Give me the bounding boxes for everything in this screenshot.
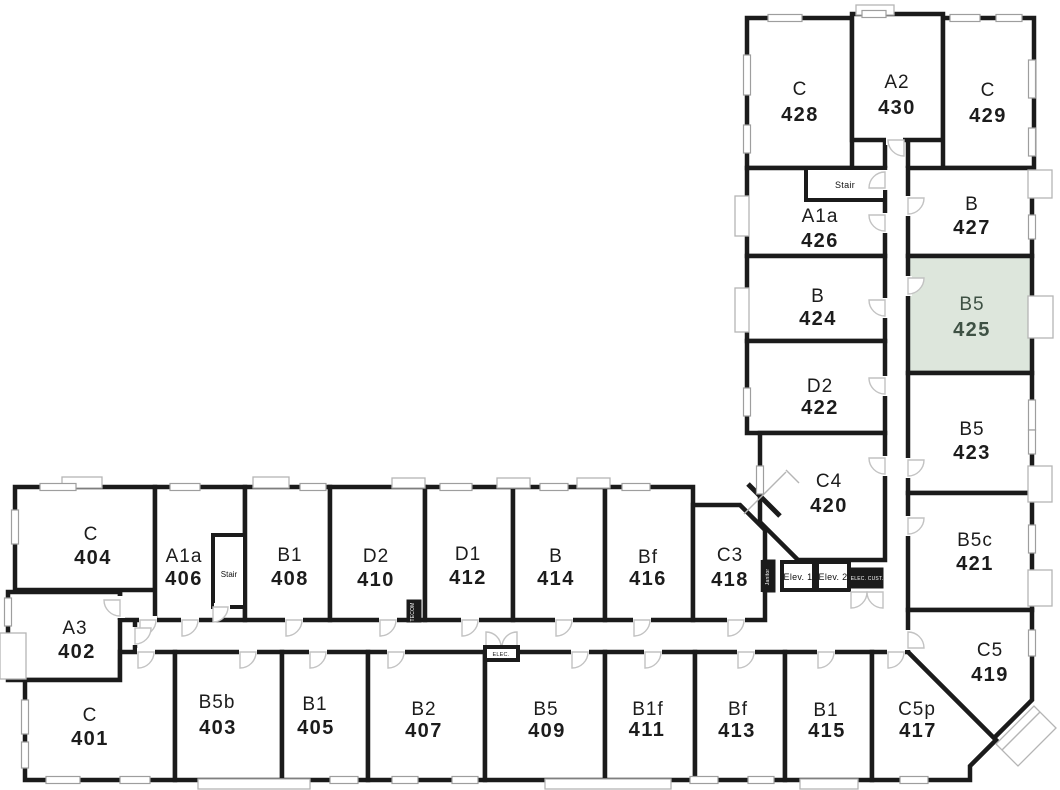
door-arc <box>462 620 478 636</box>
unit-type: B1 <box>813 700 838 721</box>
unit-number: 407 <box>405 720 443 742</box>
stair-bottom-label: Stair <box>221 570 238 579</box>
unit-number: 426 <box>801 230 839 252</box>
unit-type: A1a <box>166 546 203 567</box>
unit-shapes <box>8 14 1034 780</box>
unit-405[interactable] <box>282 652 368 780</box>
unit-number: 418 <box>711 569 749 591</box>
unit-type: C4 <box>816 471 842 492</box>
unit-number: 415 <box>808 720 846 742</box>
janitor-label: Janitor <box>765 569 771 586</box>
unit-number: 406 <box>165 568 203 590</box>
double-door-arc <box>486 632 501 647</box>
floor-plan-page: C 428 A2 430 C 429 A1a 426 B 427 B 424 B… <box>0 0 1060 790</box>
unit-number: 411 <box>629 719 666 741</box>
unit-number: 409 <box>528 720 566 742</box>
door-arc <box>888 140 904 156</box>
unit-type: Bf <box>728 699 748 720</box>
unit-number: 423 <box>953 442 991 464</box>
unit-type: C3 <box>717 545 743 566</box>
unit-type-highlighted: B5 <box>959 294 984 315</box>
door-arc <box>286 620 302 636</box>
unit-number: 419 <box>971 664 1009 686</box>
unit-type: C5p <box>898 699 936 720</box>
unit-type: B5 <box>959 419 984 440</box>
double-door-arc <box>502 632 517 647</box>
door-arc <box>634 620 650 636</box>
unit-type: B5c <box>957 530 993 551</box>
door-arc <box>556 620 572 636</box>
unit-type: B5 <box>533 699 558 720</box>
unit-number: 412 <box>449 567 487 589</box>
door-arc <box>380 620 396 636</box>
unit-type: D2 <box>807 376 833 397</box>
unit-type: B1 <box>277 545 302 566</box>
unit-number: 420 <box>810 495 848 517</box>
unit-number: 403 <box>199 717 237 739</box>
door-arc <box>135 628 151 644</box>
unit-type: A1a <box>802 206 839 227</box>
unit-number: 422 <box>801 397 839 419</box>
unit-number: 424 <box>799 308 837 330</box>
stair-top-label: Stair <box>835 180 855 190</box>
unit-number-highlighted: 425 <box>953 319 991 341</box>
unit-number: 408 <box>271 568 309 590</box>
unit-type: B5b <box>199 692 236 713</box>
unit-type: C <box>83 705 98 726</box>
a3-bay-window <box>0 633 26 679</box>
elevator-1-label: Elev. 1 <box>784 572 813 582</box>
door-arc <box>182 620 198 636</box>
unit-number: 404 <box>74 547 112 569</box>
floor-plan-svg: C 428 A2 430 C 429 A1a 426 B 427 B 424 B… <box>0 0 1060 790</box>
elec-label: ELEC. <box>493 652 510 658</box>
unit-type: C <box>793 79 808 100</box>
unit-type: B <box>549 546 563 567</box>
elec-cust-label: ELEC. CUST. <box>851 576 884 582</box>
unit-number: 410 <box>357 569 395 591</box>
unit-type: B <box>811 286 825 307</box>
unit-type: D1 <box>455 544 481 565</box>
unit-number: 402 <box>58 641 96 663</box>
unit-type: B1 <box>302 694 327 715</box>
unit-421[interactable] <box>908 493 1032 610</box>
elevator-2-label: Elev. 2 <box>819 572 848 582</box>
unit-number: 401 <box>71 728 109 750</box>
double-door-arc <box>851 592 867 608</box>
unit-type: B1f <box>632 699 664 720</box>
unit-403[interactable] <box>175 652 282 780</box>
unit-number: 430 <box>878 97 916 119</box>
tecom-label: TECOM <box>410 602 416 621</box>
unit-type: A3 <box>62 618 87 639</box>
unit-type: B2 <box>411 699 436 720</box>
unit-number: 421 <box>956 553 994 575</box>
unit-type: C <box>84 524 99 545</box>
unit-number: 428 <box>781 104 819 126</box>
unit-type: B <box>965 194 979 215</box>
unit-number: 416 <box>629 568 667 590</box>
unit-number: 427 <box>953 217 991 239</box>
unit-type: D2 <box>363 546 389 567</box>
unit-number: 413 <box>718 720 756 742</box>
double-door-arc <box>867 592 883 608</box>
unit-number: 417 <box>899 720 937 742</box>
unit-type: A2 <box>884 72 909 93</box>
unit-number: 414 <box>537 568 575 590</box>
unit-type: Bf <box>638 547 658 568</box>
unit-number: 405 <box>297 717 335 739</box>
unit-number: 429 <box>969 105 1007 127</box>
unit-type: C5 <box>977 640 1003 661</box>
door-arc <box>728 620 744 636</box>
unit-type: C <box>981 80 996 101</box>
